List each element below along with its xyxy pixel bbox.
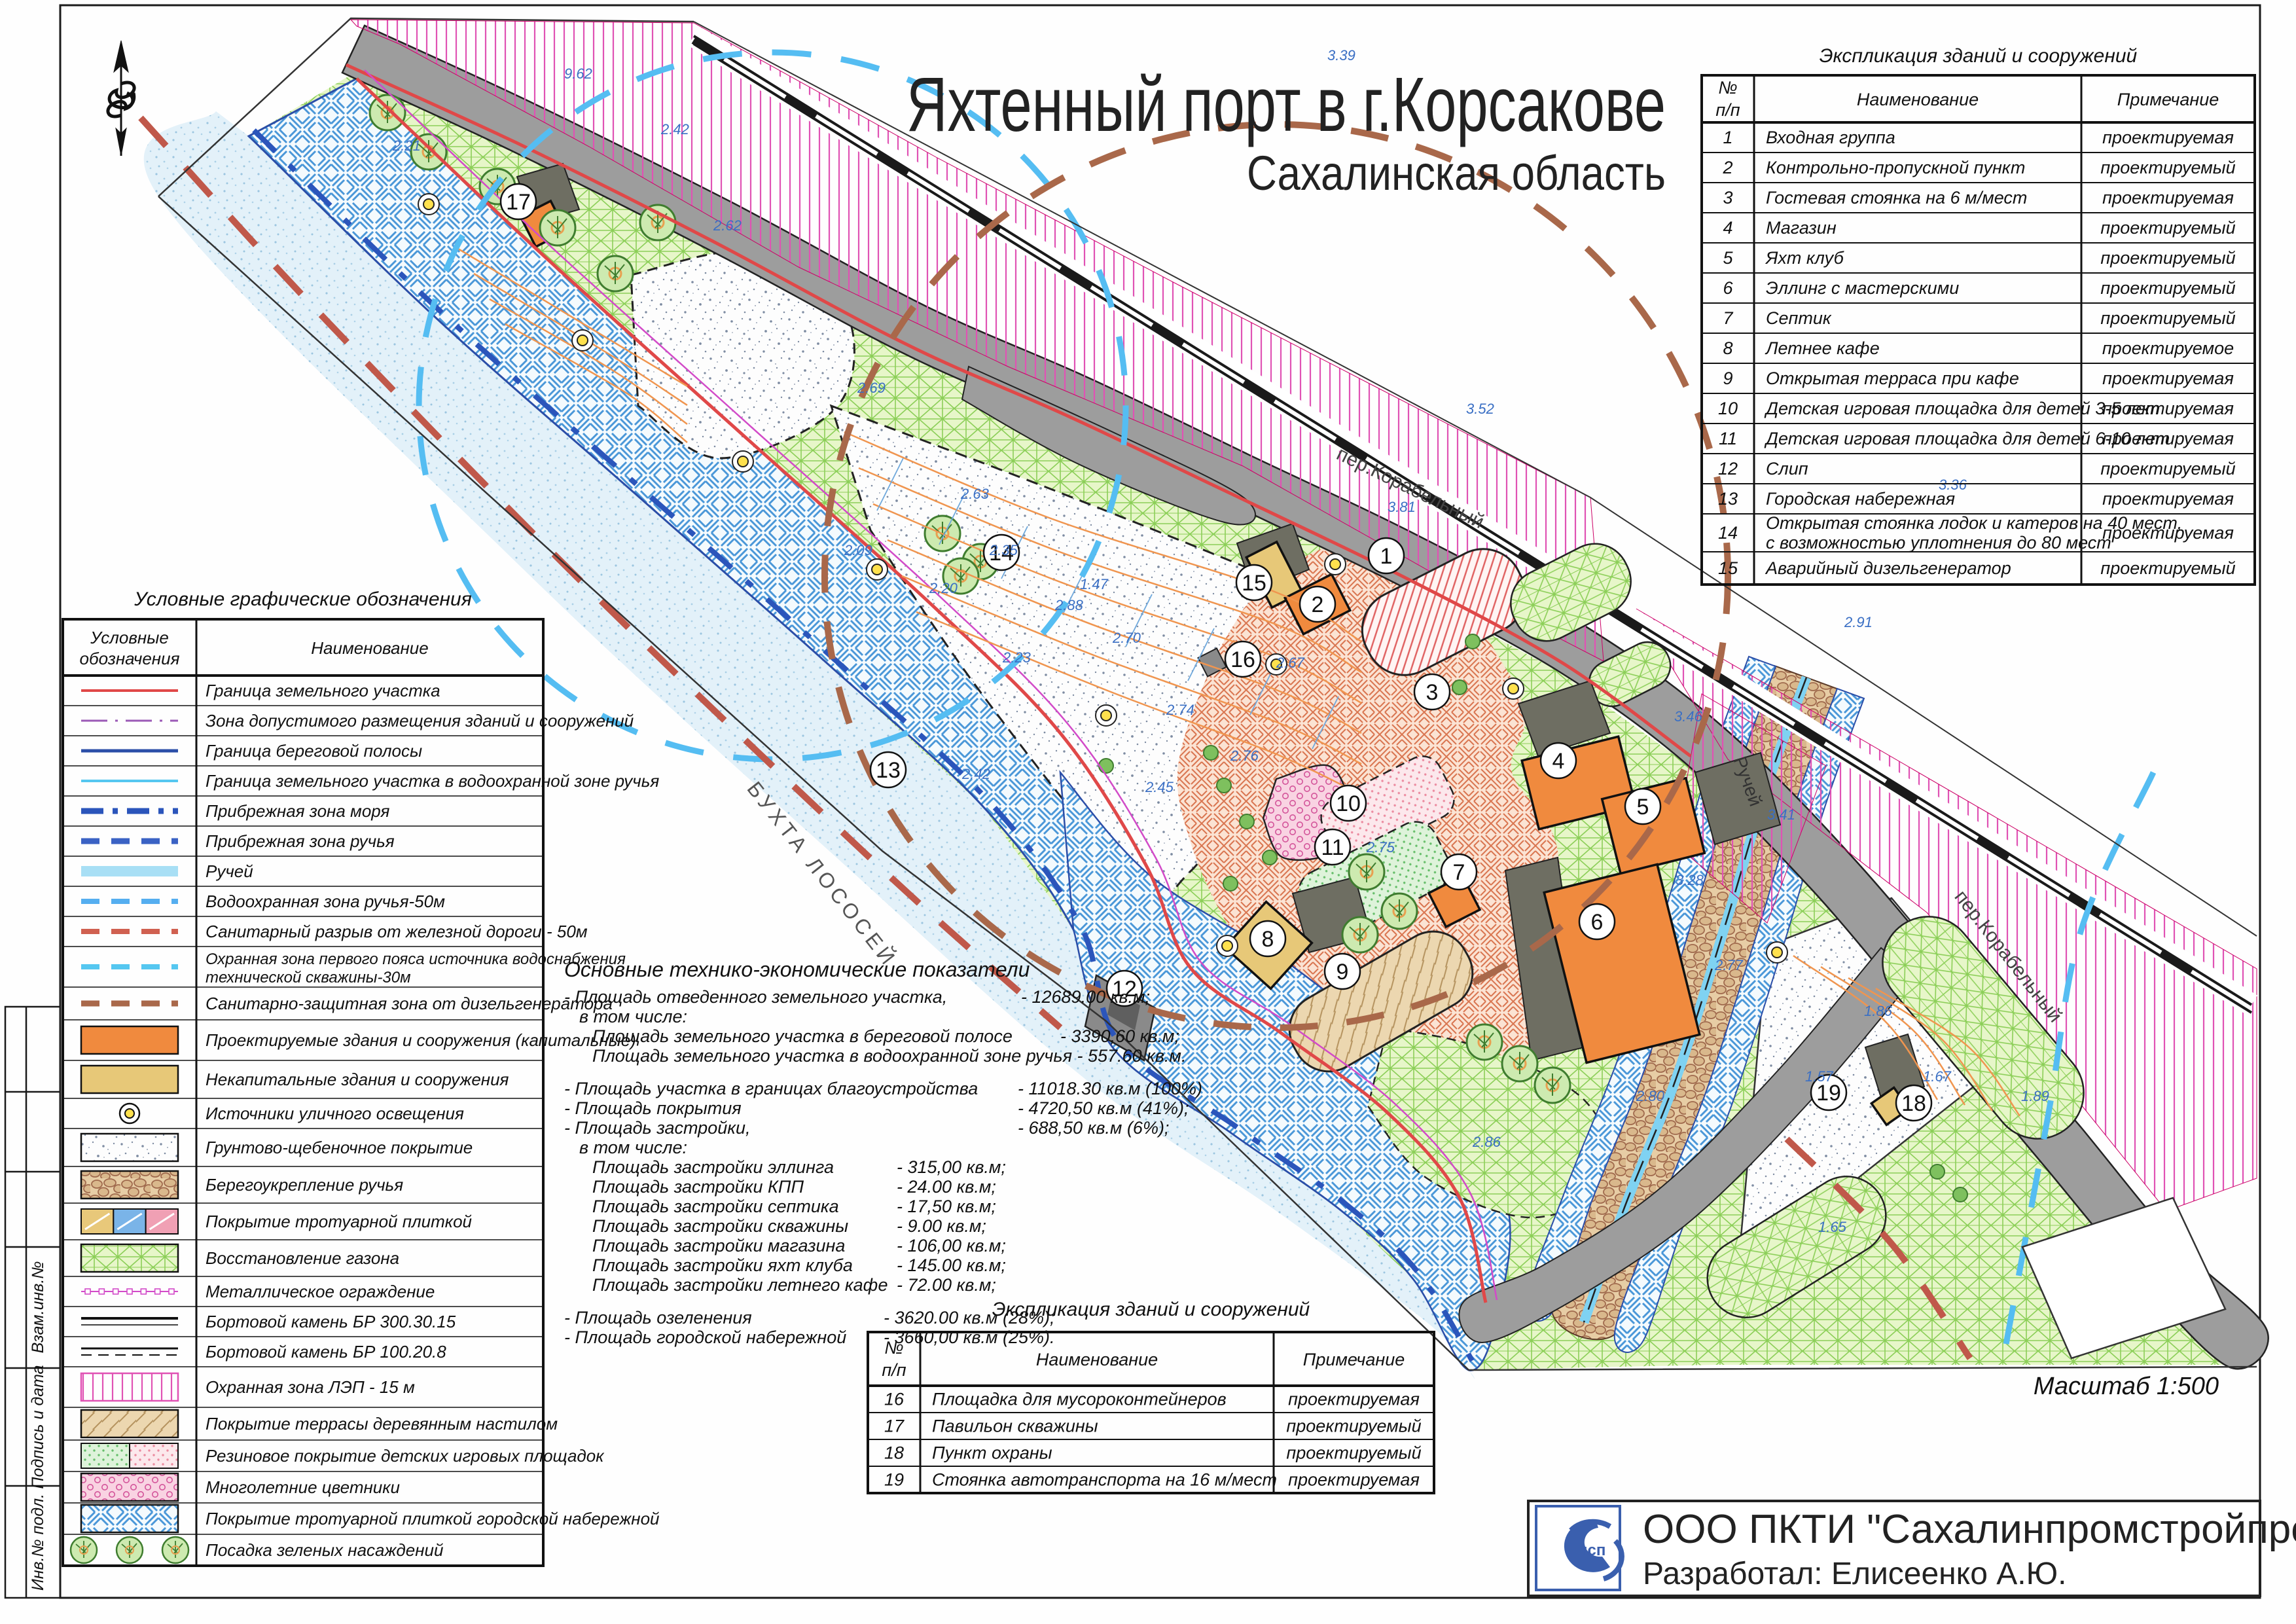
- svg-text:- 315,00 кв.м;: - 315,00 кв.м;: [897, 1157, 1006, 1177]
- svg-text:Посадка зеленых насаждений: Посадка зеленых насаждений: [206, 1540, 443, 1560]
- svg-text:7: 7: [1723, 308, 1733, 328]
- svg-text:Открытая терраса при кафе: Открытая терраса при кафе: [1766, 369, 2019, 388]
- svg-text:- 11018.30 кв.м (100%): - 11018.30 кв.м (100%): [1018, 1079, 1202, 1098]
- svg-text:проектируемая: проектируемая: [2102, 489, 2234, 509]
- svg-text:8: 8: [1262, 927, 1274, 952]
- svg-text:2.88: 2.88: [1054, 597, 1084, 613]
- svg-text:- 145.00 кв.м;: - 145.00 кв.м;: [897, 1255, 1006, 1275]
- svg-text:Площадь застройки скважины: Площадь застройки скважины: [592, 1216, 848, 1236]
- svg-text:2.70: 2.70: [1112, 630, 1141, 646]
- svg-text:проектируемый: проектируемый: [2100, 459, 2235, 478]
- svg-text:псп: псп: [1578, 1542, 1605, 1559]
- svg-text:Охранная зона ЛЭП - 15 м: Охранная зона ЛЭП - 15 м: [206, 1377, 415, 1397]
- svg-text:8: 8: [1723, 338, 1732, 358]
- svg-text:Площадь земельного участка в б: Площадь земельного участка в береговой п…: [592, 1026, 1013, 1046]
- svg-text:Металлическое ограждение: Металлическое ограждение: [206, 1282, 435, 1301]
- svg-text:1.47: 1.47: [1080, 576, 1109, 592]
- svg-text:проектируемая: проектируемая: [2102, 369, 2234, 388]
- svg-text:Контрольно-пропускной пункт: Контрольно-пропускной пункт: [1766, 158, 2025, 177]
- svg-text:9: 9: [1336, 960, 1349, 984]
- svg-text:Масштаб 1:500: Масштаб 1:500: [2034, 1373, 2219, 1400]
- svg-text:проектируемый: проектируемый: [1286, 1416, 1421, 1436]
- svg-text:14: 14: [1718, 523, 1738, 543]
- svg-text:- 24.00 кв.м;: - 24.00 кв.м;: [897, 1177, 996, 1197]
- svg-text:ООО ПКТИ "Сахалинпромстройпрое: ООО ПКТИ "Сахалинпромстройпроект": [1643, 1507, 2296, 1552]
- svg-text:Ручей: Ручей: [206, 861, 253, 881]
- svg-text:- Площадь участка в границах б: - Площадь участка в границах благоустрой…: [564, 1079, 978, 1098]
- svg-text:1.86: 1.86: [1864, 1003, 1893, 1019]
- svg-text:- 3620.00 кв.м (28%);: - 3620.00 кв.м (28%);: [884, 1308, 1054, 1327]
- svg-text:проектируемый: проектируемый: [2100, 248, 2235, 268]
- svg-text:10: 10: [1336, 791, 1361, 816]
- svg-text:Магазин: Магазин: [1766, 218, 1837, 238]
- svg-text:1.67: 1.67: [1923, 1068, 1952, 1085]
- svg-text:Площадь застройки летнего кафе: Площадь застройки летнего кафе: [592, 1275, 888, 1295]
- svg-text:9: 9: [1723, 369, 1732, 388]
- svg-text:проектируемый: проектируемый: [2100, 558, 2235, 578]
- svg-text:Прибрежная зона моря: Прибрежная зона моря: [206, 801, 389, 821]
- svg-text:технической скважины-30м: технической скважины-30м: [206, 969, 411, 986]
- svg-text:2.76: 2.76: [1230, 748, 1259, 764]
- svg-text:№: №: [1718, 78, 1737, 98]
- svg-text:5: 5: [1637, 795, 1649, 820]
- svg-text:Граница земельного участка: Граница земельного участка: [206, 681, 440, 700]
- svg-text:17: 17: [884, 1416, 905, 1436]
- svg-text:2.62: 2.62: [713, 217, 742, 234]
- svg-text:Граница береговой полосы: Граница береговой полосы: [206, 741, 422, 761]
- svg-text:Сахалинская область: Сахалинская область: [1247, 146, 1666, 200]
- svg-text:обозначения: обозначения: [80, 649, 180, 668]
- svg-text:Бортовой камень БР 100.20.8: Бортовой камень БР 100.20.8: [206, 1342, 446, 1362]
- svg-text:- 106,00 кв.м;: - 106,00 кв.м;: [897, 1236, 1006, 1255]
- svg-text:Взам.инв.№: Взам.инв.№: [29, 1261, 47, 1354]
- svg-text:Водоохранная зона ручья-50м: Водоохранная зона ручья-50м: [206, 892, 445, 911]
- svg-text:3.52: 3.52: [1466, 401, 1494, 417]
- svg-text:2.20: 2.20: [929, 580, 958, 596]
- svg-text:2.09: 2.09: [844, 542, 872, 558]
- svg-text:- 688,50 кв.м (6%);: - 688,50 кв.м (6%);: [1018, 1118, 1169, 1138]
- svg-text:Наименование: Наименование: [1036, 1350, 1158, 1369]
- svg-text:2.77: 2.77: [1714, 957, 1744, 973]
- svg-text:Берегоукрепление ручья: Берегоукрепление ручья: [206, 1175, 403, 1195]
- svg-text:Площадь застройки магазина: Площадь застройки магазина: [592, 1236, 845, 1255]
- svg-text:2.75: 2.75: [1366, 839, 1395, 856]
- svg-text:Площадь земельного участка в в: Площадь земельного участка в водоохранно…: [592, 1046, 1186, 1066]
- svg-text:Входная группа: Входная группа: [1766, 128, 1895, 147]
- svg-text:5: 5: [1723, 248, 1733, 268]
- svg-text:Санитарно-защитная зона от диз: Санитарно-защитная зона от дизельгенерат…: [206, 994, 613, 1013]
- svg-text:проектируемая: проектируемая: [2102, 399, 2234, 418]
- svg-text:- Площадь отведенного земельно: - Площадь отведенного земельного участка…: [564, 987, 947, 1007]
- svg-text:Площадь застройки яхт клуба: Площадь застройки яхт клуба: [592, 1255, 853, 1275]
- svg-text:Детская игровая площадка для д: Детская игровая площадка для детей 3-5 л…: [1764, 399, 2160, 418]
- svg-text:Аварийный дизельгенератор: Аварийный дизельгенератор: [1765, 558, 2011, 578]
- svg-text:п/п: п/п: [1715, 100, 1740, 120]
- svg-text:проектируемый: проектируемый: [2100, 278, 2235, 298]
- svg-text:16: 16: [1230, 647, 1255, 672]
- svg-text:- Площадь городской набережной: - Площадь городской набережной: [564, 1327, 846, 1347]
- svg-text:п/п: п/п: [882, 1360, 906, 1380]
- svg-text:2.80: 2.80: [1636, 1088, 1665, 1104]
- svg-text:18: 18: [1901, 1091, 1926, 1116]
- svg-text:Покрытие террасы деревянным на: Покрытие террасы деревянным настилом: [206, 1414, 558, 1434]
- svg-text:Экспликация зданий и сооружени: Экспликация зданий и сооружений: [1820, 45, 2138, 67]
- svg-text:Городская набережная: Городская набережная: [1766, 489, 1955, 509]
- svg-text:проектируемый: проектируемый: [2100, 218, 2235, 238]
- svg-text:2.42: 2.42: [660, 121, 689, 137]
- svg-text:Грунтово-щебеночное покрытие: Грунтово-щебеночное покрытие: [206, 1138, 473, 1157]
- svg-text:Яхт клуб: Яхт клуб: [1765, 248, 1844, 268]
- svg-text:1.65: 1.65: [1818, 1219, 1847, 1235]
- svg-text:3.28: 3.28: [1676, 872, 1704, 888]
- svg-text:- Площадь застройки,: - Площадь застройки,: [564, 1118, 751, 1138]
- svg-text:Эллинг с мастерскими: Эллинг с мастерскими: [1766, 278, 1959, 298]
- svg-text:13: 13: [1718, 489, 1738, 509]
- svg-text:Инв.№ подл.: Инв.№ подл.: [29, 1494, 47, 1591]
- svg-text:16: 16: [884, 1390, 905, 1409]
- svg-text:18: 18: [884, 1443, 904, 1463]
- svg-text:- 72.00 кв.м;: - 72.00 кв.м;: [897, 1275, 996, 1295]
- svg-text:6: 6: [1723, 278, 1733, 298]
- svg-text:Площадь застройки эллинга: Площадь застройки эллинга: [592, 1157, 834, 1177]
- svg-text:11: 11: [1321, 835, 1344, 860]
- svg-text:Санитарный разрыв от железной: Санитарный разрыв от железной дороги - 5…: [206, 922, 588, 941]
- svg-text:2.63: 2.63: [960, 486, 990, 502]
- svg-text:13: 13: [876, 758, 901, 783]
- svg-text:проектируемая: проектируемая: [2102, 523, 2234, 543]
- svg-text:19: 19: [884, 1470, 904, 1490]
- svg-text:Граница земельного участка в в: Граница земельного участка в водоохранно…: [206, 771, 659, 791]
- svg-text:15: 15: [1718, 558, 1738, 578]
- svg-text:4: 4: [1723, 218, 1732, 238]
- svg-text:Яхтенный порт в г.Корсакове: Яхтенный порт в г.Корсакове: [906, 62, 1666, 148]
- svg-text:2.23: 2.23: [1002, 649, 1031, 666]
- svg-text:Условные: Условные: [90, 628, 169, 647]
- svg-text:проектируемая: проектируемая: [2102, 128, 2234, 147]
- svg-text:- 17,50 кв.м;: - 17,50 кв.м;: [897, 1197, 996, 1216]
- svg-text:с возможностью уплотнения до 8: с возможностью уплотнения до 80 мест: [1766, 533, 2111, 552]
- svg-text:Павильон скважины: Павильон скважины: [932, 1416, 1098, 1436]
- svg-text:2.67: 2.67: [1276, 655, 1305, 671]
- svg-text:- Площадь покрытия: - Площадь покрытия: [564, 1098, 742, 1118]
- svg-text:- Площадь озеленения: - Площадь озеленения: [564, 1308, 752, 1327]
- svg-text:7: 7: [1453, 860, 1465, 885]
- svg-text:12: 12: [1718, 459, 1738, 478]
- svg-text:- 12689.00 кв.м;: - 12689.00 кв.м;: [1021, 987, 1150, 1007]
- svg-text:- 3660,00 кв.м (25%).: - 3660,00 кв.м (25%).: [884, 1327, 1054, 1347]
- svg-text:Зона допустимого размещения зд: Зона допустимого размещения зданий и соо…: [206, 711, 634, 731]
- svg-text:15: 15: [1242, 571, 1266, 596]
- svg-text:2: 2: [1312, 592, 1324, 617]
- svg-text:2.86: 2.86: [1472, 1134, 1501, 1150]
- svg-text:проектируемая: проектируемая: [1288, 1390, 1420, 1409]
- svg-text:2.45: 2.45: [1145, 779, 1174, 795]
- svg-text:в том числе:: в том числе:: [579, 1007, 687, 1026]
- svg-text:1.89: 1.89: [2021, 1088, 2049, 1104]
- svg-text:в том числе:: в том числе:: [579, 1138, 687, 1157]
- svg-text:проектируемая: проектируемая: [1288, 1470, 1420, 1490]
- svg-text:Септик: Септик: [1766, 308, 1832, 328]
- svg-text:Резиновое покрытие детских игр: Резиновое покрытие детских игровых площа…: [206, 1446, 605, 1466]
- svg-text:1: 1: [1723, 128, 1732, 147]
- svg-text:17: 17: [506, 190, 531, 215]
- svg-text:проектируемое: проектируемое: [2102, 338, 2234, 358]
- svg-text:6: 6: [1591, 910, 1604, 935]
- svg-text:Проектируемые здания и сооруже: Проектируемые здания и сооружения (капит…: [206, 1030, 636, 1050]
- svg-text:проектируемый: проектируемый: [2100, 158, 2235, 177]
- svg-text:- 4720,50 кв.м (41%);: - 4720,50 кв.м (41%);: [1018, 1098, 1189, 1118]
- svg-text:проектируемый: проектируемый: [1286, 1443, 1421, 1463]
- svg-text:Подпись и дата: Подпись и дата: [29, 1365, 47, 1489]
- svg-text:Прибрежная зона ручья: Прибрежная зона ручья: [206, 831, 395, 851]
- svg-text:2.74: 2.74: [1166, 702, 1194, 718]
- svg-text:Наименование: Наименование: [1857, 90, 1979, 109]
- svg-text:проектируемая: проектируемая: [2102, 188, 2234, 208]
- svg-text:10: 10: [1718, 399, 1738, 418]
- svg-text:Пункт охраны: Пункт охраны: [932, 1443, 1052, 1463]
- svg-text:Площадь застройки КПП: Площадь застройки КПП: [592, 1177, 804, 1197]
- svg-text:Бортовой камень БР 300.30.15: Бортовой камень БР 300.30.15: [206, 1312, 456, 1331]
- svg-text:Некапитальные здания и сооруже: Некапитальные здания и сооружения: [206, 1070, 509, 1089]
- svg-text:- 9.00 кв.м;: - 9.00 кв.м;: [897, 1216, 986, 1236]
- svg-text:2.21: 2.21: [392, 137, 421, 154]
- svg-text:2.91: 2.91: [1844, 614, 1873, 630]
- svg-text:3.81: 3.81: [1388, 499, 1416, 515]
- svg-text:Примечание: Примечание: [1303, 1350, 1405, 1369]
- svg-text:Многолетние цветники: Многолетние цветники: [206, 1477, 400, 1497]
- svg-text:Охранная зона первого пояса ис: Охранная зона первого пояса источника во…: [206, 950, 626, 968]
- svg-text:2.69: 2.69: [857, 380, 886, 396]
- svg-text:Основные технико-экономические: Основные технико-экономические показател…: [564, 958, 1030, 981]
- svg-text:3: 3: [1723, 188, 1732, 208]
- svg-text:3: 3: [1426, 680, 1439, 705]
- svg-text:проектируемый: проектируемый: [2100, 308, 2235, 328]
- svg-text:2: 2: [1722, 158, 1732, 177]
- svg-text:2.42: 2.42: [961, 766, 990, 782]
- svg-text:Покрытие тротуарной плиткой го: Покрытие тротуарной плиткой городской на…: [206, 1509, 660, 1528]
- svg-text:Примечание: Примечание: [2117, 90, 2219, 109]
- svg-text:4: 4: [1552, 749, 1565, 774]
- svg-text:Слип: Слип: [1766, 459, 1808, 478]
- svg-text:Источники уличного освещения: Источники уличного освещения: [206, 1104, 464, 1123]
- svg-text:Восстановление газона: Восстановление газона: [206, 1248, 399, 1268]
- svg-text:1.57: 1.57: [1805, 1068, 1834, 1085]
- svg-text:9.62: 9.62: [564, 65, 592, 82]
- svg-text:Наименование: Наименование: [311, 638, 428, 658]
- svg-text:Разработал: Елисеенко А.Ю.: Разработал: Елисеенко А.Ю.: [1643, 1557, 2066, 1591]
- svg-text:Площадка для мусороконтейнеров: Площадка для мусороконтейнеров: [932, 1390, 1227, 1409]
- svg-text:Стоянка автотранспорта на 16 м: Стоянка автотранспорта на 16 м/мест: [932, 1470, 1277, 1490]
- svg-text:Условные графические обозначен: Условные графические обозначения: [134, 588, 472, 610]
- svg-text:Летнее кафе: Летнее кафе: [1765, 338, 1880, 358]
- svg-text:2.35: 2.35: [989, 542, 1018, 558]
- svg-text:- 3390,60 кв.м;: - 3390,60 кв.м;: [1060, 1026, 1179, 1046]
- svg-text:проектируемая: проектируемая: [2102, 429, 2234, 448]
- svg-text:3.46: 3.46: [1674, 708, 1703, 725]
- svg-text:Площадь застройки септика: Площадь застройки септика: [592, 1197, 839, 1216]
- svg-text:Покрытие тротуарной плиткой: Покрытие тротуарной плиткой: [206, 1212, 472, 1231]
- svg-text:3.41: 3.41: [1767, 806, 1795, 823]
- svg-text:11: 11: [1719, 429, 1737, 448]
- svg-text:Гостевая стоянка на 6 м/мест: Гостевая стоянка на 6 м/мест: [1766, 188, 2027, 208]
- svg-text:1: 1: [1380, 544, 1393, 569]
